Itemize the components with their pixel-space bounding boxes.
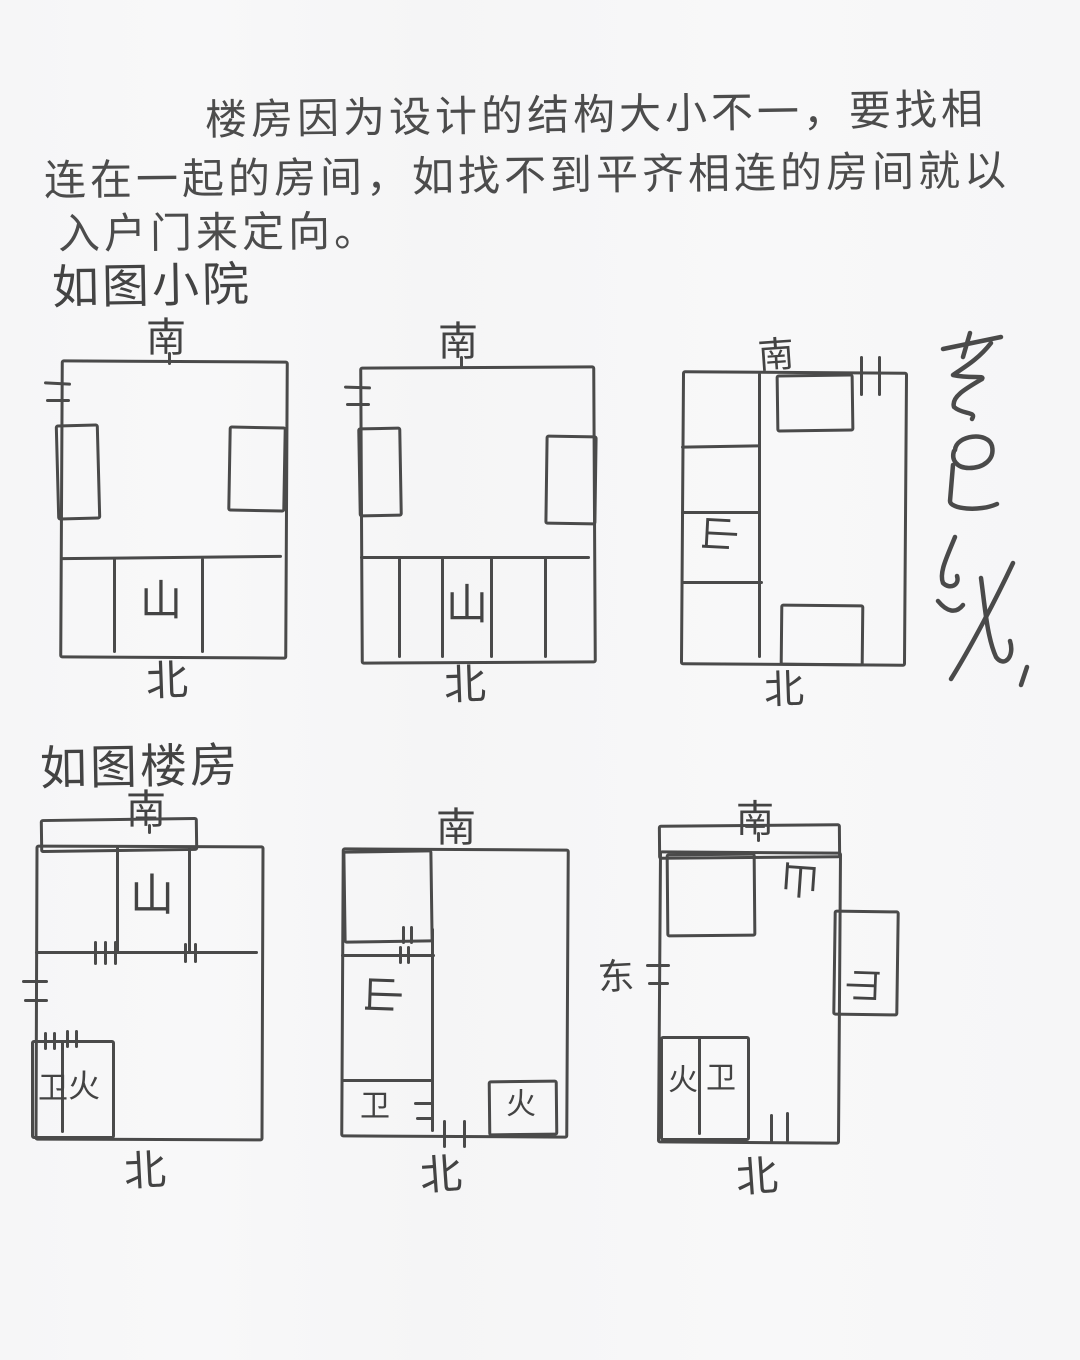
plan4-mountain-label: 山 — [130, 874, 177, 918]
plan4-row-divider — [116, 847, 119, 954]
plan5-north-label: 北 — [419, 1152, 467, 1197]
plan4-bathroom-label: 卫 — [38, 1074, 71, 1104]
plan5-top-left-room — [342, 849, 433, 943]
plan2-mountain-label: 山 — [446, 584, 491, 626]
plan4-door-tick — [104, 941, 107, 965]
plan1-right-room — [227, 426, 286, 513]
plan3-inner-wall — [758, 373, 761, 658]
plan5-inner-wall — [431, 928, 434, 1083]
plan5-bathroom-label: 卫 — [360, 1092, 393, 1122]
plan5-mountain-label-rotated: 山 — [361, 974, 402, 1018]
plan1-left-room — [55, 423, 101, 520]
plan5-door-tick — [463, 1120, 466, 1148]
plan5-door-tick — [443, 1120, 446, 1148]
plan4-door-tick — [44, 1032, 47, 1050]
plan5-room-wall — [341, 954, 435, 957]
note-line-2: 连在一起的房间，如找不到平齐相连的房间就以 — [44, 150, 1010, 202]
plan6-north-label: 北 — [735, 1154, 783, 1199]
plan6-kitchen-label: 火 — [668, 1066, 701, 1096]
plan3-door-tick — [878, 356, 881, 396]
plan3-south-label: 南 — [757, 337, 798, 376]
plan1-row-divider — [201, 558, 204, 653]
plan5-door-tick — [410, 926, 413, 944]
plan3-left-divider — [681, 581, 763, 584]
plan2-row-divider — [441, 558, 444, 658]
plan3-top-room — [776, 373, 855, 432]
plan4-door-tick — [22, 980, 48, 983]
plan6-door-tick — [646, 964, 670, 967]
plan1-north-label: 北 — [145, 659, 191, 703]
courtyard-section-heading: 如图小院 — [52, 261, 253, 311]
plan4-kitchen-label: 火 — [68, 1070, 103, 1102]
plan6-mountain-label-rotated: 山 — [847, 964, 884, 1004]
plan5-kitchen-label: 火 — [506, 1090, 539, 1120]
plan5-door-tick — [402, 926, 405, 944]
plan4-north-label: 北 — [123, 1149, 170, 1193]
plan4-door-tick — [194, 943, 197, 963]
cursive-annotation — [925, 315, 1065, 735]
note-line-1: 楼房因为设计的结构大小不一，要找相 — [205, 89, 988, 142]
plan2-right-room — [544, 435, 597, 526]
plan3-bottom-room — [780, 604, 865, 667]
plan3-door-tick — [860, 356, 863, 396]
plan4-door-tick — [66, 1030, 69, 1048]
plan6-door-tick — [648, 982, 669, 985]
plan4-row-wall — [35, 951, 258, 954]
plan4-door-tick — [114, 941, 117, 965]
plan5-bathroom-wall — [431, 1081, 434, 1132]
plan1-row-divider — [113, 558, 116, 653]
scanned-note-page: 楼房因为设计的结构大小不一，要找相 连在一起的房间，如找不到平齐相连的房间就以 … — [0, 0, 1080, 1360]
plan6-bathroom-label: 卫 — [706, 1064, 739, 1094]
plan2-north-row-wall — [360, 556, 590, 559]
plan5-door-tick — [407, 946, 410, 964]
note-line-3: 入户门来定向。 — [58, 211, 380, 256]
plan4-door-tick — [24, 999, 48, 1002]
plan2-row-divider — [544, 558, 547, 658]
plan4-row-divider — [188, 847, 191, 954]
plan2-north-label: 北 — [443, 663, 489, 707]
plan2-door-tick — [346, 403, 370, 406]
plan1-mountain-label: 山 — [140, 580, 185, 622]
plan6-door-tick — [770, 1114, 773, 1144]
plan6-door-tick — [786, 1112, 789, 1142]
plan3-mountain-label-rotated: 山 — [698, 514, 738, 557]
plan1-door-tick — [44, 381, 71, 385]
plan6-east-label: 东 — [597, 959, 638, 997]
plan6-mountain-label-rotated: 山 — [777, 859, 821, 900]
plan6-top-left-room — [666, 853, 757, 938]
plan5-south-label: 南 — [436, 808, 479, 848]
plan5-door-tick — [416, 1117, 433, 1120]
plan5-door-tick — [399, 946, 402, 964]
building-section-heading: 如图楼房 — [40, 742, 241, 792]
plan5-door-tick — [414, 1102, 434, 1105]
plan3-north-label: 北 — [763, 669, 807, 710]
plan2-row-divider — [398, 558, 401, 658]
plan4-door-tick — [94, 941, 97, 965]
plan4-door-tick — [184, 943, 187, 963]
plan1-door-tick — [46, 399, 70, 402]
plan4-door-tick — [53, 1032, 56, 1050]
plan4-door-tick — [75, 1030, 78, 1048]
plan5-room-wall — [341, 1079, 434, 1082]
plan2-left-room — [357, 427, 403, 518]
plan2-door-tick — [344, 386, 371, 390]
